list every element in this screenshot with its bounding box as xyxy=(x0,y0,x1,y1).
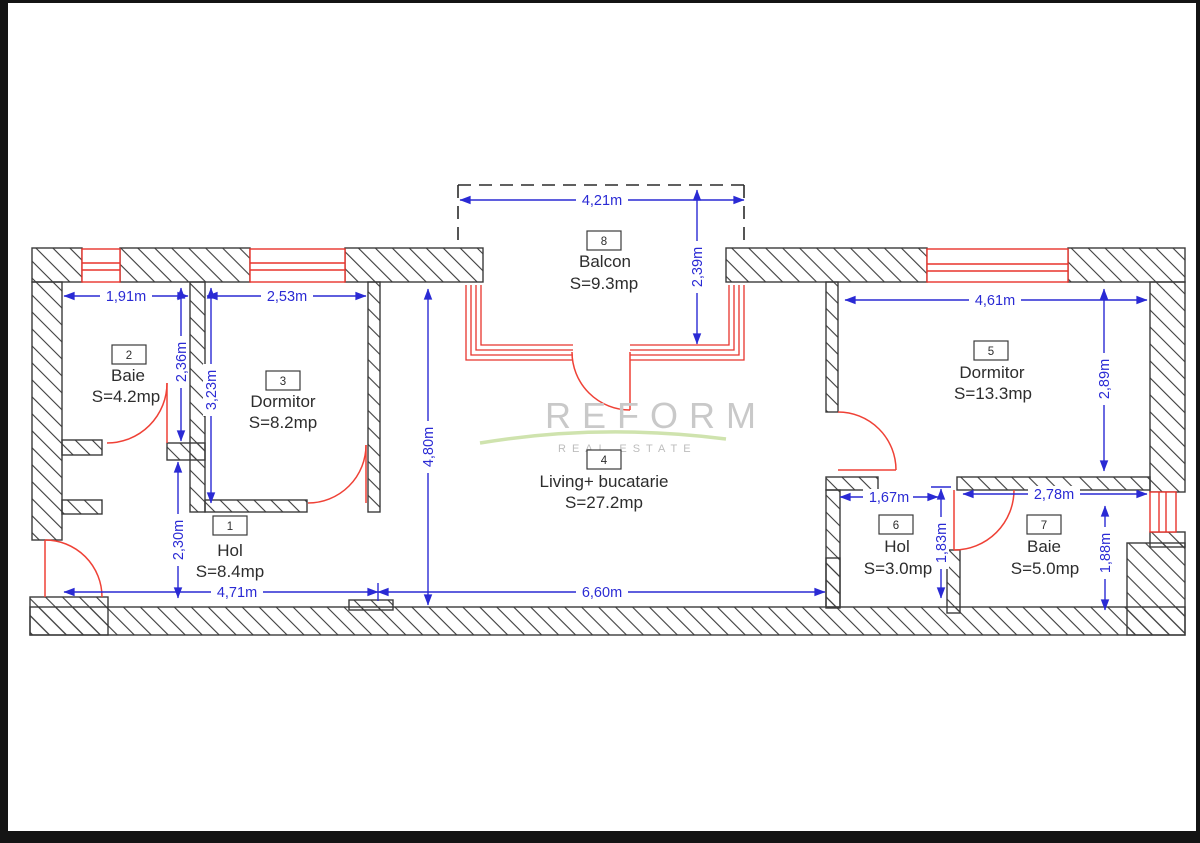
wall-top-left-c xyxy=(345,248,483,282)
svg-text:S=8.4mp: S=8.4mp xyxy=(196,562,265,581)
svg-text:S=4.2mp: S=4.2mp xyxy=(92,387,161,406)
svg-text:7: 7 xyxy=(1041,520,1047,532)
watermark-tagline: REAL ESTATE xyxy=(558,443,697,455)
wall-niche-arm-bottom xyxy=(62,500,102,514)
wall-top-right-a xyxy=(726,248,927,282)
watermark-brand: REFORM xyxy=(545,395,767,436)
door-dormitor5 xyxy=(838,412,896,470)
dim-balcony-depth: 2,39m xyxy=(689,190,706,344)
svg-text:2,36m: 2,36m xyxy=(174,342,190,382)
svg-text:4,71m: 4,71m xyxy=(217,585,257,601)
dim-hol1-width: 4,71m xyxy=(64,584,378,601)
svg-text:4,21m: 4,21m xyxy=(582,193,622,209)
svg-text:6,60m: 6,60m xyxy=(582,585,622,601)
svg-text:6: 6 xyxy=(893,520,899,532)
svg-text:2: 2 xyxy=(126,350,132,362)
svg-text:S=8.2mp: S=8.2mp xyxy=(249,413,318,432)
room-label-baie7: 7 Baie S=5.0mp xyxy=(1011,515,1080,578)
room-label-dormitor5: 5 Dormitor S=13.3mp xyxy=(954,341,1032,403)
svg-text:Baie: Baie xyxy=(1027,537,1061,556)
svg-text:4,61m: 4,61m xyxy=(975,293,1015,309)
wall-bottom-step xyxy=(349,600,393,610)
wall-top-left-b xyxy=(120,248,250,282)
svg-text:Baie: Baie xyxy=(111,366,145,385)
svg-text:1,88m: 1,88m xyxy=(1098,533,1114,573)
floor-plan-sheet: REFORM REAL ESTATE 4,21m 2,39m 1,91m xyxy=(0,0,1200,843)
wall-baie2-dormitor3 xyxy=(190,282,205,512)
svg-text:3: 3 xyxy=(280,376,286,388)
wall-niche-arm-top xyxy=(62,440,102,455)
dim-baie7-depth: 1,88m xyxy=(1097,506,1114,610)
dim-dormitor5-depth: 2,89m xyxy=(1096,289,1113,471)
svg-text:Hol: Hol xyxy=(217,541,243,560)
svg-text:8: 8 xyxy=(601,236,607,248)
wall-baie2-bottom xyxy=(167,443,205,460)
watermark-swoosh xyxy=(480,432,726,443)
svg-text:S=27.2mp: S=27.2mp xyxy=(565,493,643,512)
room-label-hol1: 1 Hol S=8.4mp xyxy=(196,516,265,581)
wall-left-outer xyxy=(32,282,62,540)
svg-text:2,78m: 2,78m xyxy=(1034,487,1074,503)
dim-dormitor3-width: 2,53m xyxy=(207,288,366,305)
window-baie7 xyxy=(1150,492,1176,532)
svg-text:Living+ bucatarie: Living+ bucatarie xyxy=(539,472,668,491)
window-baie2 xyxy=(82,249,120,282)
svg-text:1,83m: 1,83m xyxy=(934,523,950,563)
room-label-balcon: 8 Balcon S=9.3mp xyxy=(570,231,639,293)
wall-dormitor3-bottom xyxy=(205,500,307,512)
window-dormitor3 xyxy=(250,249,345,282)
door-dormitor3 xyxy=(308,445,366,503)
svg-text:2,53m: 2,53m xyxy=(267,289,307,305)
room-label-hol6: 6 Hol S=3.0mp xyxy=(864,515,933,578)
svg-text:S=13.3mp: S=13.3mp xyxy=(954,384,1032,403)
dim-balcony-width: 4,21m xyxy=(460,192,744,209)
room-label-dormitor3: 3 Dormitor S=8.2mp xyxy=(249,371,318,432)
dim-hol6-width: 1,67m xyxy=(840,489,938,506)
svg-text:2,30m: 2,30m xyxy=(171,520,187,560)
svg-text:1: 1 xyxy=(227,521,233,533)
svg-text:4,80m: 4,80m xyxy=(421,427,437,467)
dim-living-width: 6,60m xyxy=(378,583,825,601)
wall-entry-block xyxy=(30,597,108,635)
svg-text:1,91m: 1,91m xyxy=(106,289,146,305)
wall-dormitor3-living xyxy=(368,282,380,512)
floor-plan-paper: REFORM REAL ESTATE 4,21m 2,39m 1,91m xyxy=(8,3,1196,831)
room-label-baie2: 2 Baie S=4.2mp xyxy=(92,345,161,406)
dim-living-depth: 4,80m xyxy=(420,289,437,605)
balcony-glazing xyxy=(466,285,744,360)
wall-hol6-left xyxy=(826,490,840,607)
room-label-living: 4 Living+ bucatarie S=27.2mp xyxy=(539,450,668,512)
svg-text:S=9.3mp: S=9.3mp xyxy=(570,274,639,293)
svg-text:4: 4 xyxy=(601,455,608,467)
svg-text:S=3.0mp: S=3.0mp xyxy=(864,559,933,578)
svg-text:Hol: Hol xyxy=(884,537,910,556)
dim-baie2-depth: 2,36m xyxy=(173,288,190,441)
floor-plan-drawing: REFORM REAL ESTATE 4,21m 2,39m 1,91m xyxy=(8,3,1196,831)
door-baie7 xyxy=(954,490,1014,550)
svg-text:2,89m: 2,89m xyxy=(1097,359,1113,399)
dim-baie2-width: 1,91m xyxy=(64,288,188,305)
svg-text:Dormitor: Dormitor xyxy=(250,392,316,411)
watermark: REFORM REAL ESTATE xyxy=(480,395,767,455)
svg-text:5: 5 xyxy=(988,346,994,358)
wall-bottom-band xyxy=(30,607,1185,635)
svg-text:2,39m: 2,39m xyxy=(690,247,706,287)
door-entrance xyxy=(45,540,102,597)
wall-hol6-top-arm xyxy=(826,477,878,490)
dim-dormitor5-width: 4,61m xyxy=(845,292,1147,309)
svg-text:S=5.0mp: S=5.0mp xyxy=(1011,559,1080,578)
svg-text:3,23m: 3,23m xyxy=(204,370,220,410)
wall-top-right-b xyxy=(1068,248,1185,282)
window-dormitor5 xyxy=(927,249,1068,282)
wall-top-left-a xyxy=(32,248,82,282)
wall-living-dormitor5 xyxy=(826,282,838,412)
svg-text:1,67m: 1,67m xyxy=(869,490,909,506)
wall-right-upper xyxy=(1150,282,1185,492)
svg-text:Dormitor: Dormitor xyxy=(959,363,1025,382)
svg-text:Balcon: Balcon xyxy=(579,252,631,271)
dim-hol1-depth: 2,30m xyxy=(170,462,187,598)
